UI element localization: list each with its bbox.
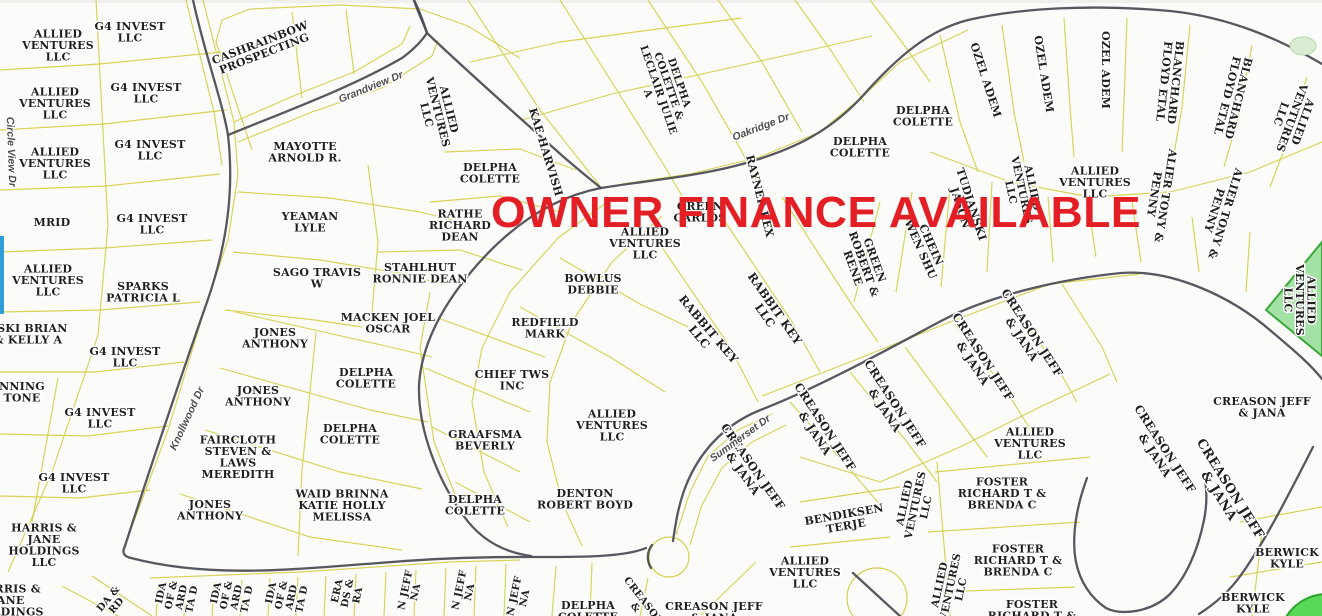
- parcel-owner-label: DELPHACOLETTE: [336, 366, 396, 391]
- map-frame-strip: [0, 0, 1322, 3]
- parcel-owner-label: GRAAFSMABEVERLY: [448, 428, 522, 453]
- owner-finance-banner: OWNER FINANCE AVAILABLE: [491, 188, 1141, 237]
- parcel-owner-label: DELPHACOLETTE: [893, 104, 953, 129]
- parcel-owner-label: MRID: [34, 216, 71, 229]
- parcel-owner-label: OZEL ADEM: [1099, 31, 1112, 109]
- parcel-owner-label: DELPHACOLETTE: [460, 161, 520, 186]
- parcel-owner-label: NNINGTONE: [0, 380, 45, 405]
- parcel-owner-label: DELPHACOLETTE: [320, 422, 380, 447]
- blue-edge-feature: [0, 236, 4, 314]
- map-svg[interactable]: ALLIEDVENTURESLLCG4 INVESTLLCALLIEDVENTU…: [0, 0, 1322, 616]
- parcel-owner-label: DELPHACOLETTE: [830, 135, 890, 160]
- parcel-owner-label: DELPHACOLETTE: [445, 493, 505, 517]
- parcel-owner-label: SPARKSPATRICIA L: [106, 280, 180, 305]
- green-blob-feature: [1290, 37, 1316, 55]
- street-name-label: Circle View Dr: [4, 117, 18, 189]
- parcel-owner-label: BOWLUSDEBBIE: [564, 272, 621, 297]
- parcel-owner-label: FAIRCLOTHSTEVEN &LAWSMEREDITH: [200, 434, 276, 482]
- parcel-owner-label: STAHLHUTRONNIE DEAN: [373, 261, 468, 286]
- parcel-map-canvas[interactable]: ALLIEDVENTURESLLCG4 INVESTLLCALLIEDVENTU…: [0, 0, 1322, 616]
- parcel-owner-label: DELPHACOLETTE: [558, 599, 618, 616]
- parcel-owner-label: ESKI BRIAN& KELLY A: [0, 322, 68, 347]
- parcel-owner-label: MAYOTTEARNOLD R.: [267, 140, 341, 165]
